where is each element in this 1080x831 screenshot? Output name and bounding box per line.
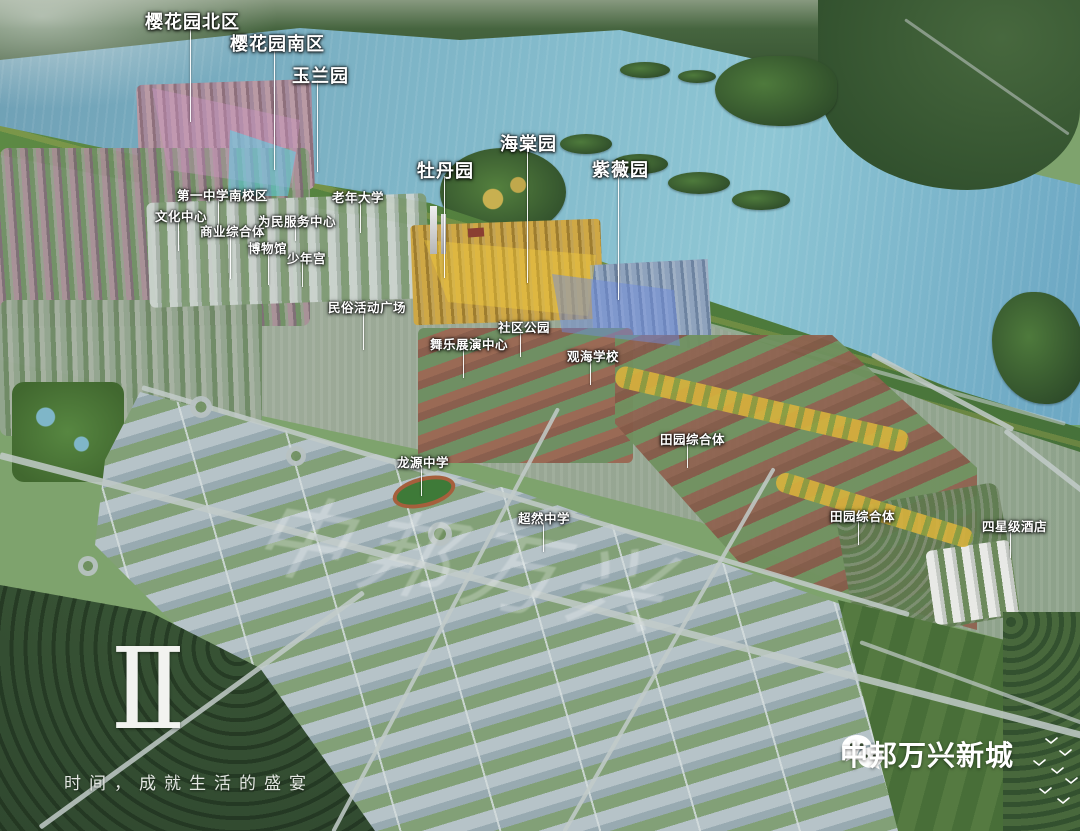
map-label-guanhai-school: 观海学校: [567, 346, 619, 365]
map-label-crape-myrtle-garden: 紫薇园: [592, 156, 649, 182]
map-label-dance-performance-center: 舞乐展演中心: [430, 334, 508, 353]
leader-line-sakura-garden-south: [274, 47, 275, 170]
map-label-magnolia-garden: 玉兰园: [292, 62, 349, 88]
map-label-youth-palace: 少年宫: [287, 248, 326, 267]
map-label-rural-complex-south: 田园综合体: [830, 506, 895, 525]
masterplan-rendering: 中邦万兴 樱花园北区 樱花园南区 玉兰园 牡丹园 海棠园 紫薇园 第一中学南校区…: [0, 0, 1080, 831]
leader-line-folk-activity-square: [363, 311, 364, 350]
tagline: 时间，成就生活的盛宴: [64, 769, 314, 794]
map-label-begonia-garden: 海棠园: [500, 130, 557, 156]
map-label-sakura-garden-north: 樱花园北区: [145, 8, 240, 34]
map-label-chaoran-middle-school: 超然中学: [518, 508, 570, 527]
leader-line-crape-myrtle-garden: [618, 175, 619, 300]
map-label-folk-activity-square: 民俗活动广场: [328, 297, 406, 316]
map-label-senior-university: 老年大学: [332, 187, 384, 206]
islet: [560, 134, 612, 154]
phase-numeral: Ⅱ: [110, 640, 186, 741]
roundabout: [78, 556, 98, 576]
landmark-tower: [430, 206, 437, 254]
map-label-community-park: 社区公园: [498, 317, 550, 336]
islet: [668, 172, 730, 194]
map-label-museum: 博物馆: [248, 238, 287, 257]
leader-line-peony-garden: [444, 176, 445, 278]
leader-line-chaoran-middle-school: [543, 523, 544, 552]
islet: [620, 62, 670, 78]
map-label-no1-middle-school-south-campus: 第一中学南校区: [177, 185, 268, 204]
map-label-four-star-hotel: 四星级酒店: [982, 516, 1047, 535]
wechat-account-name: 中邦万兴新城: [840, 734, 1014, 774]
map-label-civic-service-center: 为民服务中心: [258, 211, 336, 230]
leader-line-begonia-garden: [527, 150, 528, 283]
islet: [732, 190, 790, 210]
map-label-rural-complex-north: 田园综合体: [660, 429, 725, 448]
bird-flock-icon: [1022, 733, 1080, 811]
roundabout: [190, 396, 212, 418]
map-label-longyuan-middle-school: 龙源中学: [397, 452, 449, 471]
islet: [678, 70, 716, 83]
map-label-peony-garden: 牡丹园: [417, 157, 474, 183]
leader-line-magnolia-garden: [317, 80, 318, 172]
leader-line-sakura-garden-north: [190, 28, 191, 122]
lake-peninsula: [715, 56, 837, 126]
leader-line-commercial-complex: [230, 235, 231, 279]
red-roof-building: [468, 227, 485, 237]
map-label-sakura-garden-south: 樱花园南区: [230, 30, 325, 56]
